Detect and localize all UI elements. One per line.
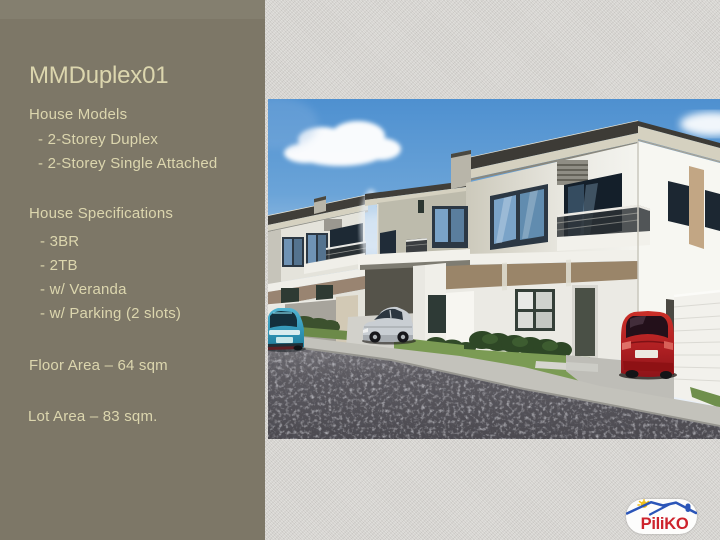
svg-text:PiliKO: PiliKO — [641, 515, 689, 533]
